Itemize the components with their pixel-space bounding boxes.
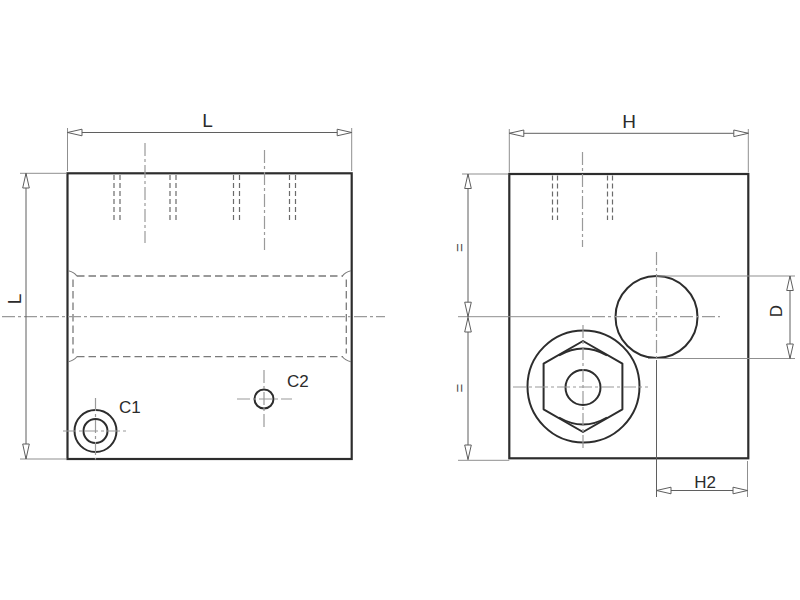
arrow-up-icon	[465, 174, 472, 189]
port-c2-label: C2	[287, 372, 309, 391]
port-c1-label: C1	[119, 398, 141, 417]
port-c2: C2	[237, 370, 309, 428]
arrow-down-icon	[787, 344, 794, 359]
dim-front-width-label: L	[202, 110, 213, 131]
dim-bore-diameter-label: D	[767, 305, 786, 317]
dim-side-width-label: H	[622, 111, 636, 132]
dim-equal-bottom-label: =	[451, 383, 468, 392]
dim-equal-top-label: =	[451, 243, 468, 252]
arrow-left-icon	[68, 129, 83, 136]
arrow-up-icon	[465, 318, 472, 333]
front-view: C1 C2 L L	[2, 110, 385, 460]
arrow-right-icon	[733, 487, 748, 494]
dim-side-width: H	[509, 111, 748, 173]
arrow-left-icon	[509, 130, 524, 137]
drawing-canvas: C1 C2 L L	[0, 0, 800, 600]
dim-equal-segments: = =	[451, 174, 590, 460]
bore-circle	[592, 252, 720, 360]
cad-drawing: C1 C2 L L	[0, 0, 800, 600]
dim-offset-h2: H2	[657, 360, 748, 497]
front-top-hole-centerlines	[145, 143, 265, 250]
arrow-up-icon	[787, 276, 794, 291]
dim-front-width: L	[68, 110, 352, 171]
front-top-hidden-holes	[114, 175, 296, 222]
arrow-right-icon	[734, 130, 749, 137]
arrow-down-icon	[465, 302, 472, 317]
dim-front-height-label: L	[4, 294, 25, 305]
arrow-down-icon	[465, 445, 472, 460]
side-view: H = = D	[451, 111, 795, 497]
arrow-right-icon	[337, 129, 352, 136]
arrow-up-icon	[23, 173, 30, 188]
port-c1: C1	[63, 398, 141, 460]
arrow-left-icon	[657, 487, 672, 494]
arrow-down-icon	[23, 444, 30, 459]
dim-offset-h2-label: H2	[694, 473, 716, 492]
hex-plug	[513, 325, 648, 450]
